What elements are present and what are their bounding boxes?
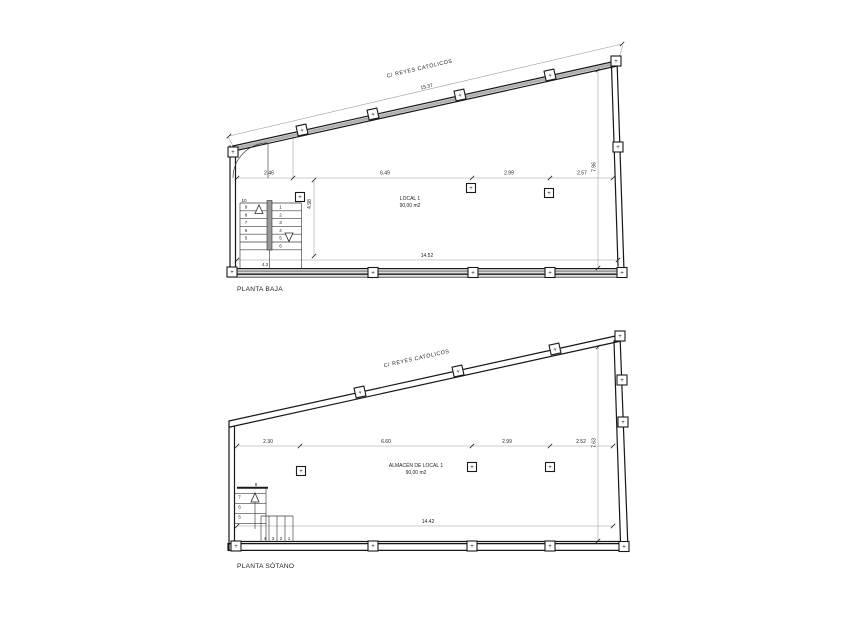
column-marker: + xyxy=(613,142,623,152)
planta-baja-plan: 10 9 8 7 6 5 1 2 3 4 5 6 + + + + + + + +… xyxy=(227,42,627,293)
stair-direction-up-icon xyxy=(255,205,263,214)
dimension-label: 2.30 xyxy=(263,439,273,445)
column-marker: + xyxy=(611,56,621,66)
column-plus-icon: + xyxy=(298,195,302,201)
column-marker: + xyxy=(368,541,378,551)
sotano-dimension-ticks xyxy=(235,345,615,543)
column-plus-icon: + xyxy=(614,59,618,65)
street-label: C/ REYES CATÓLICOS xyxy=(383,348,450,369)
stair-step-number: 5 xyxy=(279,236,282,241)
column-plus-icon: + xyxy=(471,271,475,277)
stair-step-number: 9 xyxy=(245,205,248,210)
sotano-bottom-wall-inner xyxy=(228,544,628,551)
stair-direction-up-icon xyxy=(251,493,259,502)
column-marker: + xyxy=(227,267,237,277)
baja-stair-divider xyxy=(267,201,272,251)
column-marker: + xyxy=(231,541,241,551)
column-plus-icon: + xyxy=(371,271,375,277)
column-plus-icon: + xyxy=(620,271,624,277)
column-marker: + xyxy=(467,184,476,193)
floorplan-sheet: 10 9 8 7 6 5 1 2 3 4 5 6 + + + + + + + +… xyxy=(0,0,861,620)
column-marker: + xyxy=(368,268,378,278)
dimension-label: 7.96 xyxy=(592,162,598,172)
sotano-dimension-lines xyxy=(237,347,613,541)
column-marker: + xyxy=(297,467,306,476)
dimension-label: 14.52 xyxy=(421,253,434,259)
column-plus-icon: + xyxy=(616,145,620,151)
stair-step-number: 3 xyxy=(272,536,275,541)
stair-step-number: 3 xyxy=(279,220,282,225)
column-marker: + xyxy=(549,343,561,355)
column-marker: + xyxy=(296,193,305,202)
column-plus-icon: + xyxy=(621,420,625,426)
dimension-label: 7.63 xyxy=(592,438,598,448)
dimension-label: 2.46 xyxy=(264,171,274,177)
stair-step-number: 2 xyxy=(280,536,283,541)
drawing-svg: 10 9 8 7 6 5 1 2 3 4 5 6 + + + + + + + +… xyxy=(0,0,861,620)
room-name: ALMACÉN DE LOCAL 1 xyxy=(389,462,443,469)
column-plus-icon: + xyxy=(299,469,303,475)
column-marker: + xyxy=(468,463,477,472)
stair-step-number: 6 xyxy=(238,505,241,510)
stair-step-number: 2 xyxy=(279,212,282,217)
column-marker: + xyxy=(618,417,628,427)
stair-step-number: 1 xyxy=(288,536,291,541)
column-marker: + xyxy=(619,542,629,552)
stair-step-number: 1 xyxy=(279,205,282,210)
plan-title: PLANTA BAJA xyxy=(237,286,283,293)
stair-step-number: 6 xyxy=(245,228,248,233)
stair-step-number: 10 xyxy=(241,198,247,203)
column-plus-icon: + xyxy=(234,544,238,550)
column-marker: + xyxy=(615,331,625,341)
stair-step-number: 8 xyxy=(255,482,258,487)
column-marker: + xyxy=(467,541,477,551)
column-marker: + xyxy=(545,541,555,551)
dimension-label: 6.60 xyxy=(381,439,391,445)
stair-step-number: 8 xyxy=(245,212,248,217)
column-marker: + xyxy=(545,268,555,278)
room-area: 90,00 m2 xyxy=(406,470,427,476)
column-marker: + xyxy=(228,147,238,157)
column-plus-icon: + xyxy=(620,378,624,384)
column-marker: + xyxy=(544,69,556,81)
stair-step-number: 4 xyxy=(264,536,267,541)
column-plus-icon: + xyxy=(371,544,375,550)
column-marker: + xyxy=(617,268,627,278)
dimension-label: 2.52 xyxy=(576,439,586,445)
stair-step-number: 6 xyxy=(279,244,282,249)
plan-title: PLANTA SÓTANO xyxy=(237,561,294,570)
column-marker: + xyxy=(617,375,627,385)
baja-walls xyxy=(230,60,624,277)
street-label: C/ REYES CATÓLICOS xyxy=(386,58,453,80)
column-marker: + xyxy=(296,124,308,136)
sotano-stair-steps xyxy=(235,488,294,542)
column-plus-icon: + xyxy=(230,270,234,276)
dimension-label: 4.98 xyxy=(307,199,313,209)
dimension-label: 4.3 xyxy=(262,262,269,267)
column-marker: + xyxy=(452,365,464,377)
column-plus-icon: + xyxy=(622,545,626,551)
overall-dimension: 15.37 xyxy=(420,83,434,92)
stair-step-number: 7 xyxy=(245,220,248,225)
column-plus-icon: + xyxy=(469,186,473,192)
column-plus-icon: + xyxy=(548,465,552,471)
stair-step-number: 5 xyxy=(238,515,241,520)
column-plus-icon: + xyxy=(548,544,552,550)
stair-step-number: 4 xyxy=(279,228,282,233)
column-plus-icon: + xyxy=(548,271,552,277)
stair-direction-down-icon xyxy=(285,233,293,242)
column-plus-icon: + xyxy=(547,191,551,197)
stair-step-number: 7 xyxy=(238,495,241,500)
stair-step-number: 5 xyxy=(245,236,248,241)
planta-sotano-plan: 8 7 6 5 4 3 2 1 + + + + + + + + + + + + … xyxy=(228,331,629,570)
column-plus-icon: + xyxy=(470,544,474,550)
column-marker: + xyxy=(454,89,466,101)
column-marker: + xyxy=(468,268,478,278)
column-marker: + xyxy=(367,108,379,120)
column-marker: + xyxy=(354,386,366,398)
dimension-label: 6.49 xyxy=(380,171,390,177)
dimension-label: 2.57 xyxy=(577,171,587,177)
room-area: 90,00 m2 xyxy=(400,203,421,209)
dimension-label: 2.99 xyxy=(504,171,514,177)
column-plus-icon: + xyxy=(231,150,235,156)
column-plus-icon: + xyxy=(618,334,622,340)
dimension-label: 2.99 xyxy=(502,439,512,445)
room-name: LOCAL 1 xyxy=(400,196,421,202)
column-marker: + xyxy=(545,189,554,198)
baja-glazed-facade-hatch xyxy=(234,64,616,149)
column-plus-icon: + xyxy=(470,465,474,471)
dimension-label: 14.42 xyxy=(422,519,435,525)
column-marker: + xyxy=(546,463,555,472)
